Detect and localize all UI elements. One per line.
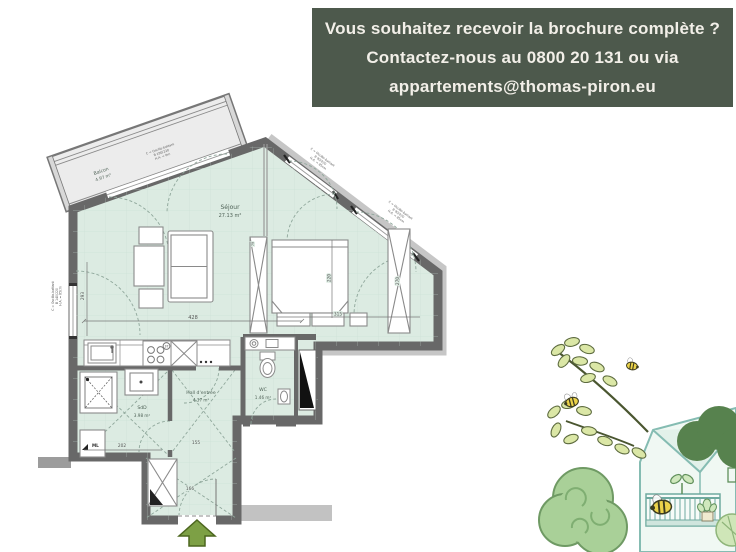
- entry-closet: [148, 459, 177, 506]
- svg-text:166: 166: [186, 486, 194, 492]
- svg-text:428: 428: [188, 315, 198, 321]
- washing-machine-label: ML: [92, 443, 99, 448]
- washing-machine-icon: ML: [80, 430, 105, 457]
- nightstand: [350, 313, 367, 326]
- sink-icon: [88, 343, 116, 363]
- technical-shaft: [299, 350, 316, 410]
- shower-room-label: SdD: [137, 405, 147, 411]
- svg-text:79: 79: [251, 242, 255, 246]
- svg-text:315: 315: [334, 312, 342, 318]
- coffee-table: [134, 246, 164, 286]
- chair: [139, 289, 163, 308]
- banner-line-question: Vous souhaitez recevoir la brochure comp…: [325, 14, 720, 43]
- window-annotation-left: C = Oscillo-battant B 140/220 H.A. = 85c…: [51, 280, 63, 310]
- svg-text:220: 220: [327, 274, 333, 282]
- branch-icon: [546, 336, 648, 460]
- wc-label: WC: [259, 387, 267, 393]
- bed-bench: [277, 313, 310, 326]
- svg-text:H.A. = 85cm: H.A. = 85cm: [59, 286, 63, 306]
- wardrobe-icon: [250, 237, 267, 333]
- toilet-icon: [260, 352, 275, 378]
- flyer-page: Balcon 4.97 m² C = Oscillo-battant B 190…: [0, 0, 736, 552]
- svg-text:3.98 m²: 3.98 m²: [134, 413, 151, 418]
- brochure-banner: Vous souhaitez recevoir la brochure comp…: [312, 8, 733, 107]
- svg-text:27.13 m²: 27.13 m²: [219, 213, 242, 219]
- shower-icon: [80, 372, 117, 413]
- washbasin-icon: [125, 369, 158, 395]
- living-room-label: Séjour: [220, 204, 240, 211]
- fridge-icon: [171, 341, 197, 366]
- chair: [139, 227, 163, 244]
- hall-label: Hall d'entrée: [186, 389, 216, 396]
- sofa: [168, 231, 213, 302]
- banner-line-phone: Contactez-nous au 0800 20 131 ou via: [366, 43, 678, 72]
- svg-text:270: 270: [395, 277, 401, 285]
- wc-radiator-icon: [278, 389, 290, 404]
- svg-text:202: 202: [118, 443, 126, 449]
- hob-dim: 37: [164, 345, 168, 349]
- svg-text:4.37 m²: 4.37 m²: [193, 398, 210, 403]
- door-hinge-dots: [200, 361, 212, 363]
- svg-text:1.46 m²: 1.46 m²: [255, 395, 272, 400]
- bee-icon: [625, 357, 640, 371]
- bed: [272, 240, 348, 313]
- living-room-furniture: [134, 227, 213, 308]
- kitchen-counter: 37: [84, 340, 230, 366]
- tree-icon: [539, 468, 627, 552]
- svg-text:155: 155: [192, 440, 200, 446]
- neighbor-wall-stub-right: [237, 505, 332, 521]
- banner-line-email: appartements@thomas-piron.eu: [389, 72, 656, 101]
- svg-text:293: 293: [80, 292, 86, 300]
- hob-icon: 37: [143, 341, 171, 366]
- decorative-illustration: [539, 336, 736, 552]
- neighbor-wall-stub-left: [38, 457, 71, 468]
